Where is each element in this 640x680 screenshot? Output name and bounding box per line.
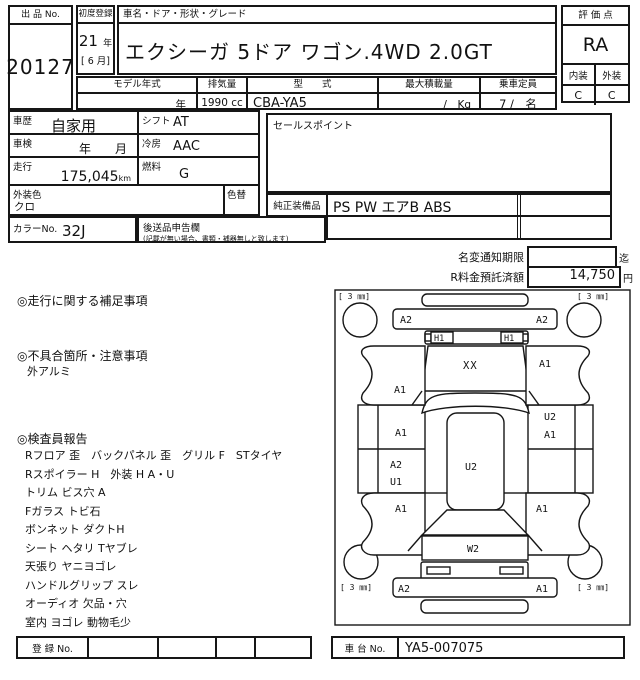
front-door-left-code: A1	[395, 428, 407, 439]
front-fender-right-panel	[526, 346, 589, 405]
tire-front-right	[567, 303, 601, 337]
late-items-note: (記載が無い場合、書類・補器無しと致します)	[139, 234, 324, 244]
grade-label: 評 価 点	[563, 7, 628, 26]
tread-depth-rear-left: [ 3 ㎜]	[340, 583, 372, 592]
lot-number-label: 出 品 No.	[10, 7, 71, 25]
roof-code: U2	[465, 462, 477, 473]
chassis-no-label: 車 台 No.	[333, 638, 399, 657]
inspector-item: Fガラス トビ石	[25, 503, 282, 522]
chassis-no-value: YA5-007075	[399, 638, 623, 657]
car-name-label: 車名・ドア・形状・グレード	[119, 7, 555, 24]
name-change-row: 名変通知期限 迄	[380, 246, 629, 268]
color-no-value: 32J	[62, 222, 86, 240]
model-code-cell: 型 式 CBA-YA5	[246, 76, 379, 110]
defect-title: ◎不具合箇所・注意事項	[17, 347, 147, 364]
front-fender-right-code: A1	[539, 359, 551, 370]
tailgate-code: W2	[467, 544, 479, 555]
mileage-unit: km	[119, 174, 131, 183]
fuel-label: 燃料	[142, 159, 161, 173]
exterior-grade: C	[596, 86, 629, 105]
front-fender-left-code: A1	[394, 385, 406, 396]
rear-fender-right-panel	[526, 493, 589, 555]
max-load-label: 最大積載量	[379, 78, 479, 94]
mileage-label: 走行	[13, 159, 32, 173]
windshield	[422, 393, 529, 413]
mileage-value: 175,045	[61, 169, 119, 185]
sales-point-box: セールスポイント	[266, 113, 612, 193]
headlight-right-code: H1	[504, 334, 514, 344]
rear-bumper-panel	[393, 578, 557, 597]
tread-depth-rear-right: [ 3 ㎜]	[577, 583, 609, 592]
late-items-box: 後送品申告欄 (記載が無い場合、書類・補器無しと致します)	[137, 216, 326, 243]
chassis-no-box: 車 台 No. YA5-007075	[331, 636, 625, 659]
equipment-row2-cell-left	[328, 217, 521, 238]
name-change-label: 名変通知期限	[380, 249, 527, 265]
front-lip-panel	[422, 294, 528, 306]
deposit-unit: 円	[621, 270, 633, 285]
vehicle-info-box: 車歴 自家用 シフト AT 車検 年 月 冷房 AAC 走行 175,045km	[8, 110, 260, 216]
first-registration-month: [ 6 月]	[78, 53, 113, 67]
car-name: エクシーガ 5ドア ワゴン.4WD 2.0GT	[119, 24, 555, 65]
deposit-value-box: 14,750	[527, 266, 621, 288]
mileage-note-title: ◎走行に関する補足事項	[17, 292, 147, 309]
history-label: 車歴	[13, 113, 32, 127]
model-year-cell: モデル年式 年	[76, 76, 198, 110]
front-bumper-left-code: A2	[400, 315, 412, 326]
tread-depth-front-left: [ 3 ㎜]	[338, 292, 370, 301]
exterior-label: 外装	[596, 65, 629, 84]
equipment-extra-cell	[521, 195, 610, 215]
inspector-report-list: Rフロア 歪 バックパネル 歪 グリル F STタイヤ Rスポイラー H 外装 …	[25, 447, 282, 632]
front-door-right-code-top: U2	[544, 412, 556, 423]
registration-no-box: 登 録 No.	[16, 636, 312, 659]
interior-grade: C	[563, 86, 596, 105]
capacity-label: 乗車定員	[481, 78, 555, 94]
car-name-box: 車名・ドア・形状・グレード エクシーガ 5ドア ワゴン.4WD 2.0GT	[117, 5, 557, 75]
interior-label: 内装	[563, 65, 596, 84]
headlight-left-code: H1	[434, 334, 444, 344]
body-color-label: 外装色	[13, 187, 42, 201]
name-change-value-box	[527, 246, 617, 268]
rear-fender-left-code: A1	[395, 504, 407, 515]
auction-sheet: 出 品 No. 20127 初度登録 21 年 [ 6 月] 車名・ドア・形状・…	[0, 0, 640, 680]
model-code-value: CBA-YA5	[248, 94, 377, 111]
equipment-row2-cell-right	[521, 217, 610, 238]
model-code-label: 型 式	[248, 78, 377, 94]
registration-no-label: 登 録 No.	[18, 638, 89, 657]
inspector-item: 天張り ヤニヨゴレ	[25, 558, 282, 577]
inspector-item: ボンネット ダクトH	[25, 521, 282, 540]
ac-label: 冷房	[142, 136, 161, 150]
grade-score: RA	[563, 26, 628, 65]
hood-code: XX	[463, 360, 478, 372]
inspector-item: ハンドルグリップ スレ	[25, 577, 282, 596]
lot-number: 20127	[10, 25, 71, 109]
front-bumper-panel	[393, 309, 557, 329]
rear-door-left-code-bottom: U1	[390, 477, 402, 488]
rear-glass	[422, 510, 528, 535]
equipment-row-2	[326, 215, 612, 240]
max-load-cell: 最大積載量 / Kg	[377, 76, 481, 110]
rear-bumper-right-code: A1	[536, 584, 548, 595]
defect-item: 外アルミ	[27, 363, 71, 379]
displacement-value: 1990 cc	[198, 94, 246, 109]
first-registration-label: 初度登録	[78, 7, 113, 24]
equipment-label: 純正装備品	[268, 195, 328, 215]
shift-label: シフト	[142, 113, 171, 127]
rear-lip-panel	[421, 600, 528, 613]
capacity-value: 7 / 名	[481, 94, 555, 112]
reg-no-cell	[159, 638, 217, 657]
displacement-cell: 排気量 1990 cc	[196, 76, 248, 110]
inspector-item: オーディオ 欠品・穴	[25, 595, 282, 614]
rear-fender-right-code: A1	[536, 504, 548, 515]
front-door-right-code-bottom: A1	[544, 430, 556, 441]
equipment-row: 純正装備品 PS PW エアB ABS	[266, 193, 612, 217]
grade-box: 評 価 点 RA 内装 外装 C C	[561, 5, 630, 103]
late-items-label: 後送品申告欄	[139, 218, 324, 234]
headlight-left-nub	[425, 334, 431, 341]
front-bumper-right-code: A2	[536, 315, 548, 326]
first-registration-box: 初度登録 21 年 [ 6 月]	[76, 5, 115, 75]
front-fender-left-panel	[362, 346, 425, 405]
inspector-item: 室内 ヨゴレ 動物毛少	[25, 614, 282, 633]
deposit-label: R料金預託済額	[380, 269, 527, 285]
color-no-box: カラーNo. 32J	[8, 216, 137, 243]
equipment-value: PS PW エアB ABS	[328, 195, 521, 215]
inspector-item: シート ヘタリ Tヤブレ	[25, 540, 282, 559]
inspector-item: Rスポイラー H 外装 H A・U	[25, 466, 282, 485]
reg-no-cell	[217, 638, 256, 657]
sales-point-label: セールスポイント	[268, 115, 610, 132]
inspector-item: トリム ビス穴 A	[25, 484, 282, 503]
name-change-suffix: 迄	[617, 250, 629, 265]
color-no-label: カラーNo.	[13, 221, 57, 235]
displacement-label: 排気量	[198, 78, 246, 94]
capacity-cell: 乗車定員 7 / 名	[479, 76, 557, 110]
damage-diagram: [ 3 ㎜] [ 3 ㎜] [ 3 ㎜] [ 3 ㎜] A2 A2 H1 H1 …	[334, 289, 631, 626]
first-registration-year: 21	[79, 32, 98, 50]
rear-door-left-code-top: A2	[390, 460, 402, 471]
model-year-label: モデル年式	[78, 78, 196, 94]
max-load-value: / Kg	[379, 94, 479, 112]
inspector-item: Rフロア 歪 バックパネル 歪 グリル F STタイヤ	[25, 447, 282, 466]
reg-no-cell	[256, 638, 310, 657]
inspector-title: ◎検査員報告	[17, 430, 87, 447]
inspection-label: 車検	[13, 136, 32, 150]
lot-number-box: 出 品 No. 20127	[8, 5, 73, 110]
color-change-label: 色替	[227, 187, 246, 201]
deposit-row: R料金預託済額 14,750 円	[380, 266, 633, 288]
rear-bumper-left-code: A2	[398, 584, 410, 595]
first-registration-year-unit: 年	[103, 39, 112, 49]
rear-fender-left-panel	[362, 493, 425, 555]
tread-depth-front-right: [ 3 ㎜]	[577, 292, 609, 301]
tire-front-left	[343, 303, 377, 337]
reg-no-cell	[89, 638, 159, 657]
